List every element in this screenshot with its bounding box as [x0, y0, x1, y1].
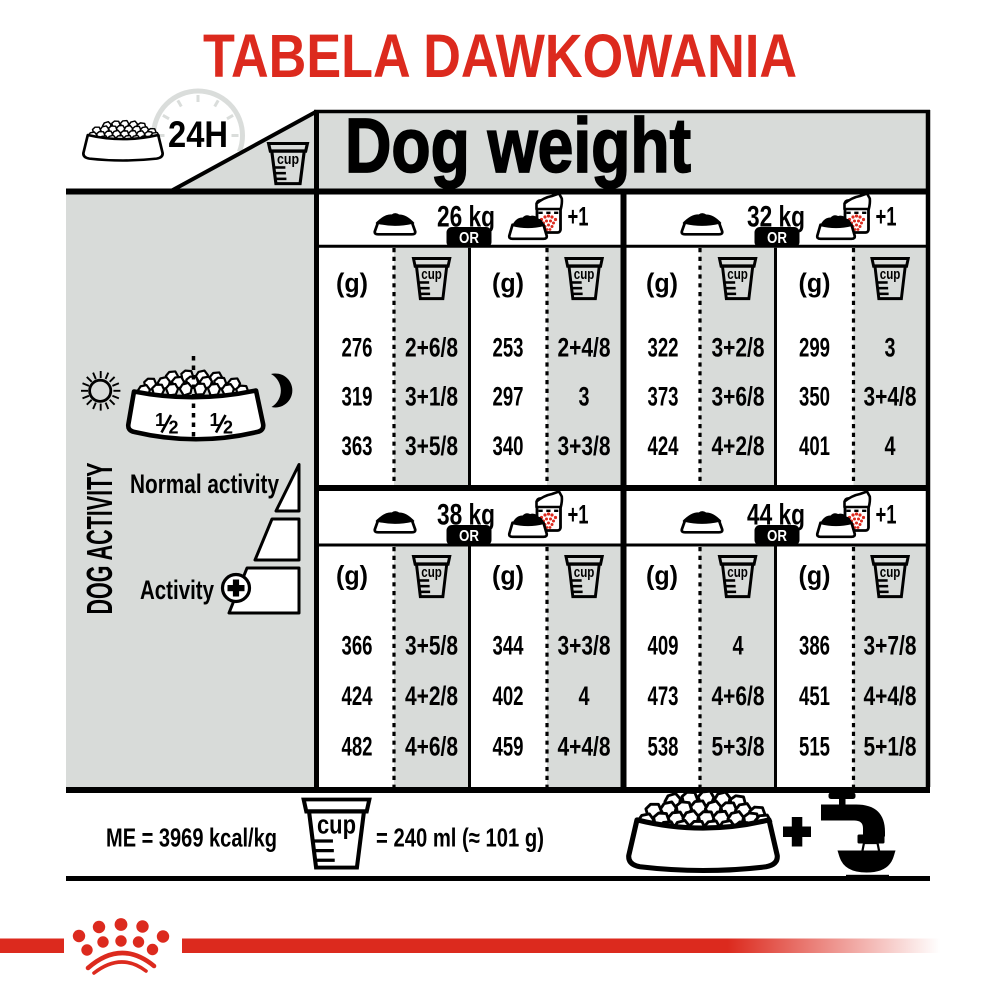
svg-text:3+5/8: 3+5/8 — [405, 631, 458, 661]
svg-text:OR: OR — [767, 230, 787, 247]
svg-text:4: 4 — [885, 431, 896, 461]
svg-text:(g): (g) — [646, 561, 678, 591]
svg-text:4: 4 — [579, 681, 590, 711]
svg-text:340: 340 — [493, 431, 524, 461]
svg-text:538: 538 — [648, 732, 679, 762]
svg-text:482: 482 — [342, 732, 373, 762]
svg-text:344: 344 — [493, 631, 524, 661]
svg-text:OR: OR — [459, 528, 479, 545]
svg-text:424: 424 — [648, 431, 679, 461]
svg-text:+1: +1 — [568, 500, 589, 530]
svg-text:(g): (g) — [799, 561, 831, 591]
svg-text:Normal activity: Normal activity — [130, 469, 279, 499]
svg-text:402: 402 — [493, 681, 524, 711]
svg-text:350: 350 — [799, 382, 830, 412]
svg-text:297: 297 — [493, 382, 524, 412]
svg-text:ME = 3969 kcal/kg: ME = 3969 kcal/kg — [106, 823, 277, 853]
svg-text:5+1/8: 5+1/8 — [864, 732, 917, 762]
svg-text:515: 515 — [799, 732, 830, 762]
svg-text:2: 2 — [223, 418, 233, 438]
svg-text:TABELA DAWKOWANIA: TABELA DAWKOWANIA — [203, 22, 797, 91]
svg-text:459: 459 — [493, 732, 524, 762]
svg-text:+1: +1 — [876, 500, 897, 530]
svg-text:366: 366 — [342, 631, 373, 661]
svg-text:3+7/8: 3+7/8 — [864, 631, 917, 661]
svg-text:(g): (g) — [336, 561, 368, 591]
svg-text:(g): (g) — [799, 268, 831, 298]
svg-text:2+6/8: 2+6/8 — [405, 333, 458, 363]
svg-text:3+5/8: 3+5/8 — [405, 431, 458, 461]
svg-text:3+1/8: 3+1/8 — [405, 382, 458, 412]
svg-text:424: 424 — [342, 681, 373, 711]
svg-text:5+3/8: 5+3/8 — [712, 732, 765, 762]
svg-text:4+4/8: 4+4/8 — [558, 732, 611, 762]
svg-text:DOG ACTIVITY: DOG ACTIVITY — [79, 463, 120, 615]
svg-text:3+2/8: 3+2/8 — [712, 333, 765, 363]
svg-text:409: 409 — [648, 631, 679, 661]
svg-text:4+2/8: 4+2/8 — [405, 681, 458, 711]
svg-text:253: 253 — [493, 333, 524, 363]
svg-text:+1: +1 — [876, 202, 897, 232]
svg-text:322: 322 — [648, 333, 679, 363]
svg-text:3+4/8: 3+4/8 — [864, 382, 917, 412]
svg-text:3: 3 — [579, 382, 590, 412]
svg-text:4+2/8: 4+2/8 — [712, 431, 765, 461]
svg-text:386: 386 — [799, 631, 830, 661]
svg-text:(g): (g) — [336, 268, 368, 298]
svg-text:401: 401 — [799, 431, 830, 461]
svg-text:Dog weight: Dog weight — [345, 103, 691, 189]
svg-text:363: 363 — [342, 431, 373, 461]
svg-text:319: 319 — [342, 382, 373, 412]
svg-text:2: 2 — [168, 418, 178, 438]
svg-text:299: 299 — [799, 333, 830, 363]
svg-text:373: 373 — [648, 382, 679, 412]
svg-text:(g): (g) — [492, 268, 524, 298]
svg-text:3+3/8: 3+3/8 — [558, 631, 611, 661]
svg-text:3+6/8: 3+6/8 — [712, 382, 765, 412]
svg-text:276: 276 — [342, 333, 373, 363]
svg-text:2+4/8: 2+4/8 — [558, 333, 611, 363]
svg-text:(g): (g) — [492, 561, 524, 591]
svg-text:24H: 24H — [168, 113, 228, 155]
svg-text:4+6/8: 4+6/8 — [405, 732, 458, 762]
svg-text:3: 3 — [885, 333, 896, 363]
svg-text:= 240 ml (≈ 101 g): = 240 ml (≈ 101 g) — [376, 823, 544, 853]
svg-text:OR: OR — [459, 230, 479, 247]
svg-text:OR: OR — [767, 528, 787, 545]
svg-text:4+4/8: 4+4/8 — [864, 681, 917, 711]
svg-text:Activity: Activity — [140, 575, 214, 605]
svg-text:(g): (g) — [646, 268, 678, 298]
svg-text:4: 4 — [733, 631, 744, 661]
svg-text:4+6/8: 4+6/8 — [712, 681, 765, 711]
svg-text:473: 473 — [648, 681, 679, 711]
svg-text:3+3/8: 3+3/8 — [558, 431, 611, 461]
svg-text:451: 451 — [799, 681, 830, 711]
svg-text:+1: +1 — [568, 202, 589, 232]
